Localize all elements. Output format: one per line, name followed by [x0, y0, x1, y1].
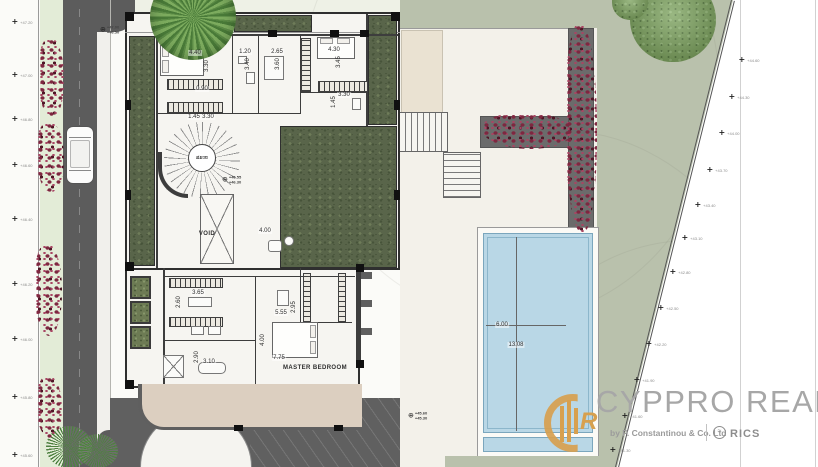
- plan-graphic: +46.60: [20, 163, 32, 168]
- dimension-label: 3.60: [275, 57, 281, 71]
- brand-byline: by P. Constantinou & Co. Ltd: [610, 428, 726, 438]
- plan-graphic: +43.70: [715, 168, 727, 173]
- plan-graphic: +47.00: [20, 73, 32, 78]
- plan-graphic: +45.60+45.30: [415, 411, 427, 420]
- survey-marker: ++43.10: [681, 234, 702, 242]
- survey-marker: ++43.40: [694, 201, 715, 209]
- plan-graphic: +44.00: [727, 131, 739, 136]
- plan-graphic: +: [11, 161, 18, 169]
- plan-graphic: +: [11, 393, 18, 401]
- survey-marker: ++47.00: [11, 71, 32, 79]
- dimension-label: 1.20: [238, 49, 252, 55]
- plan-graphic: +: [11, 115, 18, 123]
- room-label: VOID: [198, 231, 216, 237]
- plan-graphic: +: [706, 166, 713, 174]
- brand-logo: R CYPPRO REALTY by P. Constantinou & Co.…: [540, 378, 818, 464]
- plan-graphic: +42.80: [678, 270, 690, 275]
- plan-graphic: +: [681, 234, 688, 242]
- plan-graphic: +: [11, 451, 18, 459]
- dimension-label: 1.45: [187, 114, 201, 120]
- logo-r-icon: R: [580, 408, 597, 436]
- plan-graphic: +: [11, 18, 18, 26]
- survey-marker: ++46.00: [11, 335, 32, 343]
- plan-graphic: +43.40: [703, 203, 715, 208]
- survey-marker: ++42.80: [669, 268, 690, 276]
- dimension-label: 2.90: [194, 350, 200, 364]
- plan-graphic: +42.50: [666, 306, 678, 311]
- plan-graphic: +: [645, 340, 652, 348]
- plan-graphic: ⊕: [100, 27, 106, 34]
- plan-graphic: +46.40: [20, 217, 32, 222]
- plan-graphic: +42.20: [654, 342, 666, 347]
- dimension-label: 3.10: [202, 359, 216, 365]
- brand-name: CYPPRO REALTY: [596, 384, 818, 420]
- dimension-label: 3.30: [337, 92, 351, 98]
- survey-marker: ++44.30: [728, 93, 749, 101]
- rics-icon: ≈: [713, 426, 726, 439]
- plan-graphic: ⊕: [408, 413, 414, 420]
- plan-graphic: +46.55+46.30: [229, 175, 241, 184]
- dimension-label: 5.55: [274, 310, 288, 316]
- survey-marker: ++44.60: [738, 56, 759, 64]
- dimension-label: 2.60: [176, 295, 182, 309]
- plan-graphic: ⊕: [222, 177, 228, 184]
- level-marker: ⊕+45.60+45.30: [408, 411, 427, 420]
- plan-graphic: +46.80: [20, 117, 32, 122]
- dimension-label: 4.00: [258, 228, 272, 234]
- logo-bar-icon: [567, 400, 571, 442]
- survey-marker: ++46.80: [11, 115, 32, 123]
- logo-bar-icon: [560, 406, 564, 442]
- floor-plan-canvas: LIFT Ø1.20: [0, 0, 818, 467]
- dimension-label: 4.40: [188, 50, 202, 56]
- dimension-label: 6.00: [495, 322, 509, 328]
- survey-marker: ++45.60: [11, 451, 32, 459]
- survey-marker: ++46.40: [11, 215, 32, 223]
- plan-graphic: +: [738, 56, 745, 64]
- logo-bar-icon: [574, 408, 578, 434]
- level-marker: ⊕+46.55+46.30: [222, 175, 241, 184]
- plan-graphic: +45.60: [20, 453, 32, 458]
- plan-graphic: +: [11, 280, 18, 288]
- survey-marker: ++46.60: [11, 161, 32, 169]
- plan-graphic: +43.10: [690, 236, 702, 241]
- plan-graphic: +: [718, 129, 725, 137]
- dimension-label: 3.30: [201, 114, 215, 120]
- plan-graphic: +: [728, 93, 735, 101]
- survey-marker: ++44.00: [718, 129, 739, 137]
- level-marker: ⊕+47.00+46.50: [100, 25, 119, 34]
- survey-marker: ++46.20: [11, 280, 32, 288]
- dimension-label: 3.65: [191, 290, 205, 296]
- survey-marker: ++42.50: [657, 304, 678, 312]
- logo-divider: [706, 424, 707, 441]
- plan-graphic: +: [11, 71, 18, 79]
- plan-graphic: +: [11, 335, 18, 343]
- dimension-label: 1.45: [331, 95, 337, 109]
- plan-graphic: +: [657, 304, 664, 312]
- dimension-label: 0.90: [195, 86, 209, 92]
- dimension-label: 3.40: [245, 57, 251, 71]
- room-label: MASTER BEDROOM: [282, 365, 348, 371]
- plan-graphic: +45.80: [20, 395, 32, 400]
- dimension-label: 7.75: [272, 355, 286, 361]
- survey-marker: ++45.80: [11, 393, 32, 401]
- survey-marker: ++43.70: [706, 166, 727, 174]
- plan-graphic: +46.00: [20, 337, 32, 342]
- dimension-label: 2.95: [291, 300, 297, 314]
- plan-graphic: +: [669, 268, 676, 276]
- plan-graphic: +46.20: [20, 282, 32, 287]
- survey-marker: ++42.20: [645, 340, 666, 348]
- dimension-label: 2.65: [270, 49, 284, 55]
- rics-label: RICS: [730, 428, 760, 440]
- plan-graphic: +47.20: [20, 20, 32, 25]
- dimension-label: 4.00: [260, 333, 266, 347]
- plan-graphic: +47.00+46.50: [107, 25, 119, 34]
- survey-marker: ++47.20: [11, 18, 32, 26]
- plan-graphic: +44.30: [737, 95, 749, 100]
- dimension-label: 13.08: [507, 342, 524, 348]
- dimension-label: 3.30: [204, 59, 210, 73]
- dimension-label: 3.45: [336, 55, 342, 69]
- plan-graphic: +: [11, 215, 18, 223]
- plan-graphic: +: [694, 201, 701, 209]
- plan-graphic: +44.60: [747, 58, 759, 63]
- dimension-label: 4.30: [327, 47, 341, 53]
